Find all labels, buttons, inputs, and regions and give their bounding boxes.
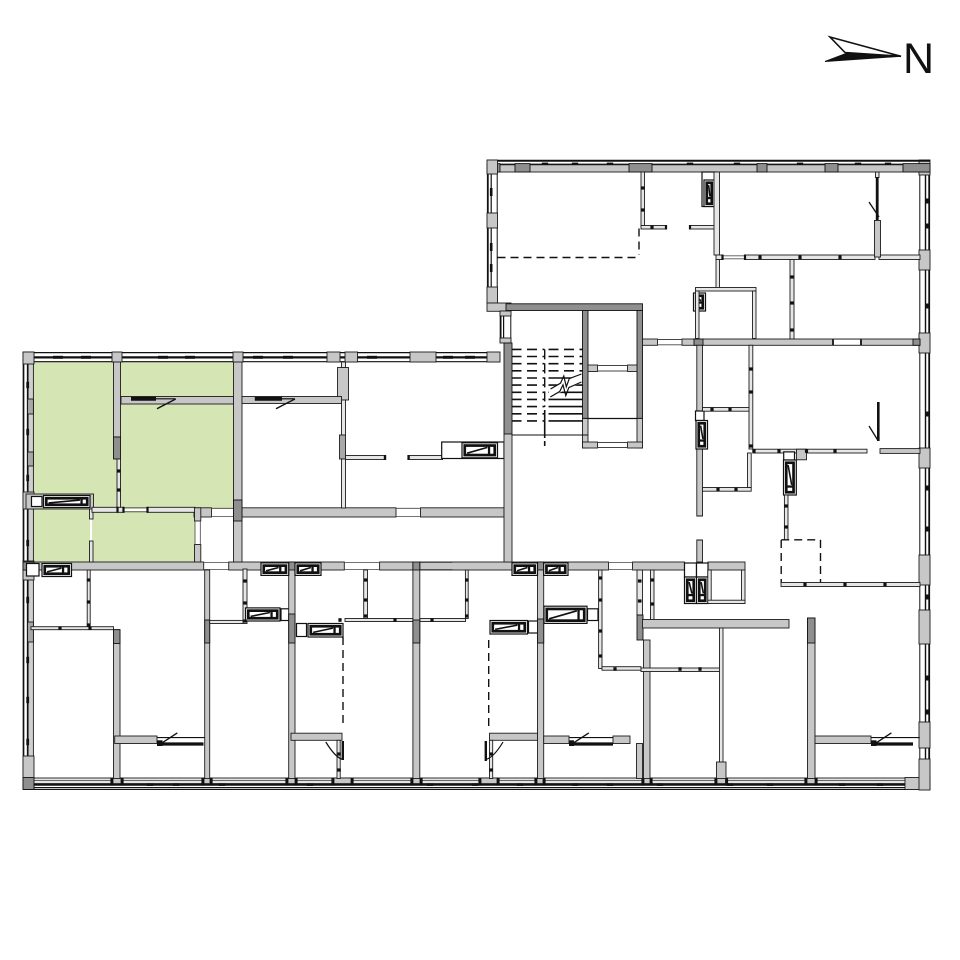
- svg-text:N: N: [903, 35, 934, 83]
